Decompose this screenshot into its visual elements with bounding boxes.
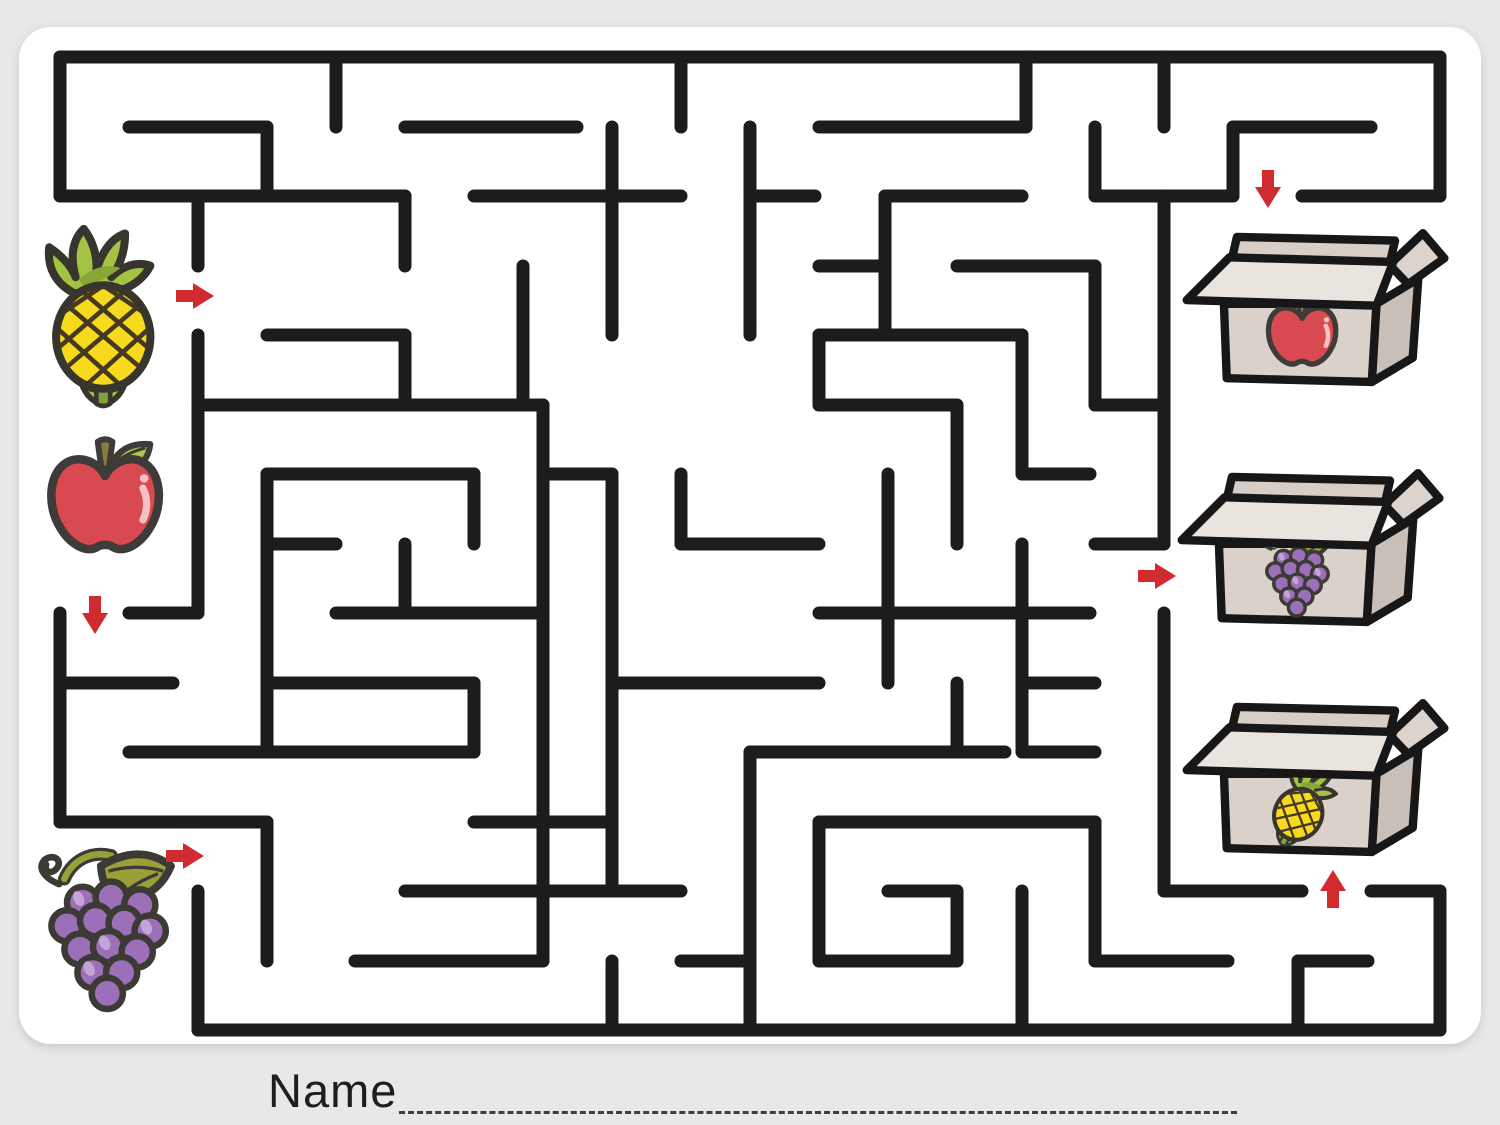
box-with-grapes (1182, 473, 1440, 622)
apple-box-arrow (1255, 170, 1281, 208)
name-row: Name (268, 1062, 1228, 1114)
name-input-line[interactable] (399, 1101, 1237, 1114)
maze-canvas[interactable] (0, 0, 1500, 1125)
pineapple-box-arrow (1320, 870, 1346, 908)
pineapple-start (40, 229, 167, 406)
name-label: Name (268, 1067, 397, 1114)
box-with-apple (1187, 233, 1445, 382)
grapes-box-arrow (1138, 563, 1176, 589)
box-with-pineapple (1187, 703, 1445, 860)
grapes-start (41, 854, 171, 1009)
worksheet-page: Name (0, 0, 1500, 1125)
target-boxes (1182, 233, 1445, 860)
apple-start-arrow (82, 596, 108, 634)
pineapple-start-arrow (176, 283, 214, 309)
apple-start (51, 439, 159, 549)
